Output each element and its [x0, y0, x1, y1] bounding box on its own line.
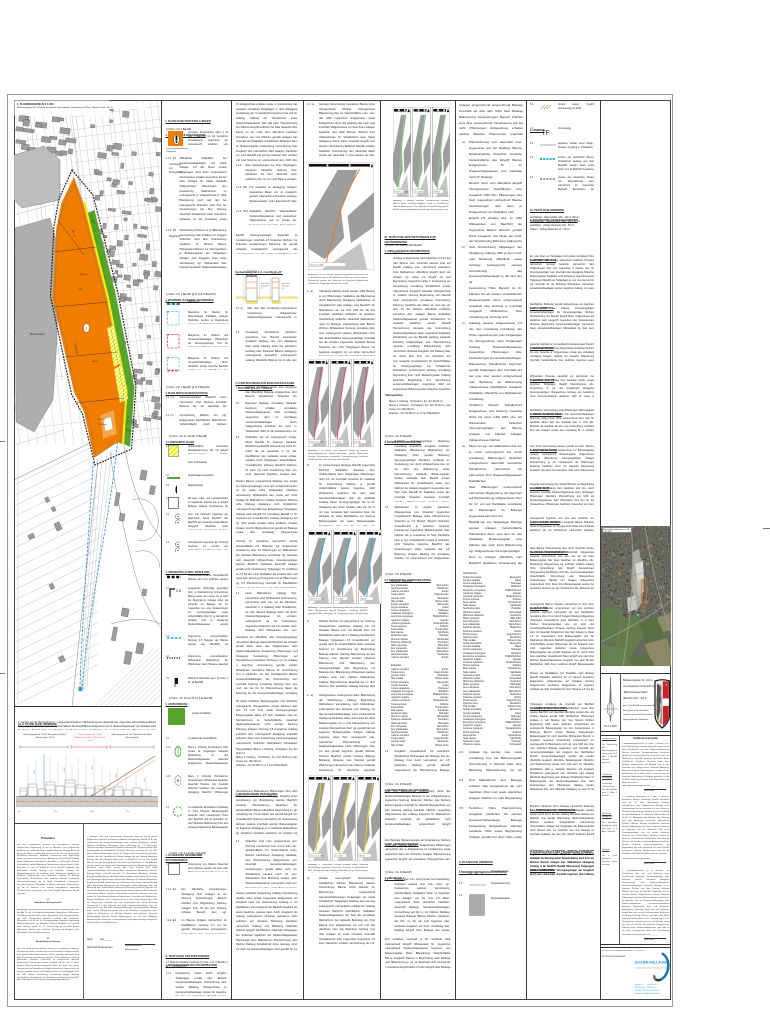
- svg-text:50m: 50m: [90, 811, 94, 813]
- svg-text:Tel. 08131 333-0: Tel. 08131 333-0: [635, 990, 648, 992]
- svg-text:MK(S): MK(S): [92, 361, 98, 363]
- svg-text:Bootshafen: Bootshafen: [30, 332, 46, 336]
- svg-text:50 m 1:1.250: 50 m 1:1.250: [311, 598, 325, 600]
- svg-text:1:1.250: 1:1.250: [333, 441, 341, 443]
- svg-text:25m: 25m: [54, 811, 58, 813]
- svg-text:1:1.250: 1:1.250: [336, 598, 344, 600]
- svg-text:+9,6: +9,6: [144, 779, 146, 782]
- svg-text:GRZ: GRZ: [78, 289, 83, 291]
- svg-text:50 m 1:1.250: 50 m 1:1.250: [311, 441, 325, 443]
- svg-text:1:1.250: 1:1.250: [335, 855, 343, 857]
- svg-text:3.200qm: 3.200qm: [98, 424, 107, 426]
- svg-text:M 50: M 50: [360, 855, 366, 857]
- svg-text:muc@zk-land.de: muc@zk-land.de: [647, 993, 660, 995]
- svg-text:M 50: M 50: [356, 441, 362, 443]
- svg-text:+11,4: +11,4: [116, 774, 118, 778]
- svg-text:ZECHER-KELLAUER: ZECHER-KELLAUER: [635, 961, 669, 965]
- svg-text:+16,8: +16,8: [64, 768, 66, 772]
- svg-text:2,5: 2,5: [176, 589, 181, 593]
- svg-text:5.2: 5.2: [261, 288, 263, 290]
- svg-text:0m: 0m: [18, 811, 21, 813]
- svg-text:5.2: 5.2: [281, 288, 283, 290]
- svg-text:Landschaftsarchitektur Stadtpl: Landschaftsarchitektur Stadtplaner GmbH: [635, 967, 669, 970]
- svg-text:Kapellen-Str. 8: Kapellen-Str. 8: [647, 983, 658, 986]
- svg-text:TF: TF: [542, 131, 550, 137]
- svg-text:+14,2: +14,2: [92, 766, 94, 770]
- svg-text:IV 4,0a: IV 4,0a: [98, 419, 106, 421]
- svg-text:50 m 1:1.250: 50 m 1:1.250: [395, 191, 409, 193]
- svg-text:80336 Bau: 80336 Bau: [647, 987, 655, 989]
- svg-text:50 m 1:1.250: 50 m 1:1.250: [311, 264, 325, 266]
- svg-text:+12,5: +12,5: [34, 770, 36, 774]
- svg-text:50 m 1:1.250: 50 m 1:1.250: [311, 855, 325, 857]
- svg-text:M 50: M 50: [361, 598, 367, 600]
- svg-text:75m: 75m: [126, 811, 130, 813]
- svg-text:MK(S)a: MK(S)a: [80, 274, 88, 276]
- svg-text:Hauptstr. 1: Hauptstr. 1: [635, 983, 643, 986]
- svg-text:1:1.250: 1:1.250: [415, 191, 423, 193]
- svg-text:Einzelhaus: Einzelhaus: [247, 270, 257, 272]
- svg-text:85253 Quern: 85253 Quern: [635, 986, 645, 989]
- svg-text:Tel. 089 45671-0: Tel. 089 45671-0: [647, 990, 660, 992]
- svg-text:Terrassen: Terrassen: [271, 273, 280, 275]
- svg-text:M 50: M 50: [434, 191, 440, 193]
